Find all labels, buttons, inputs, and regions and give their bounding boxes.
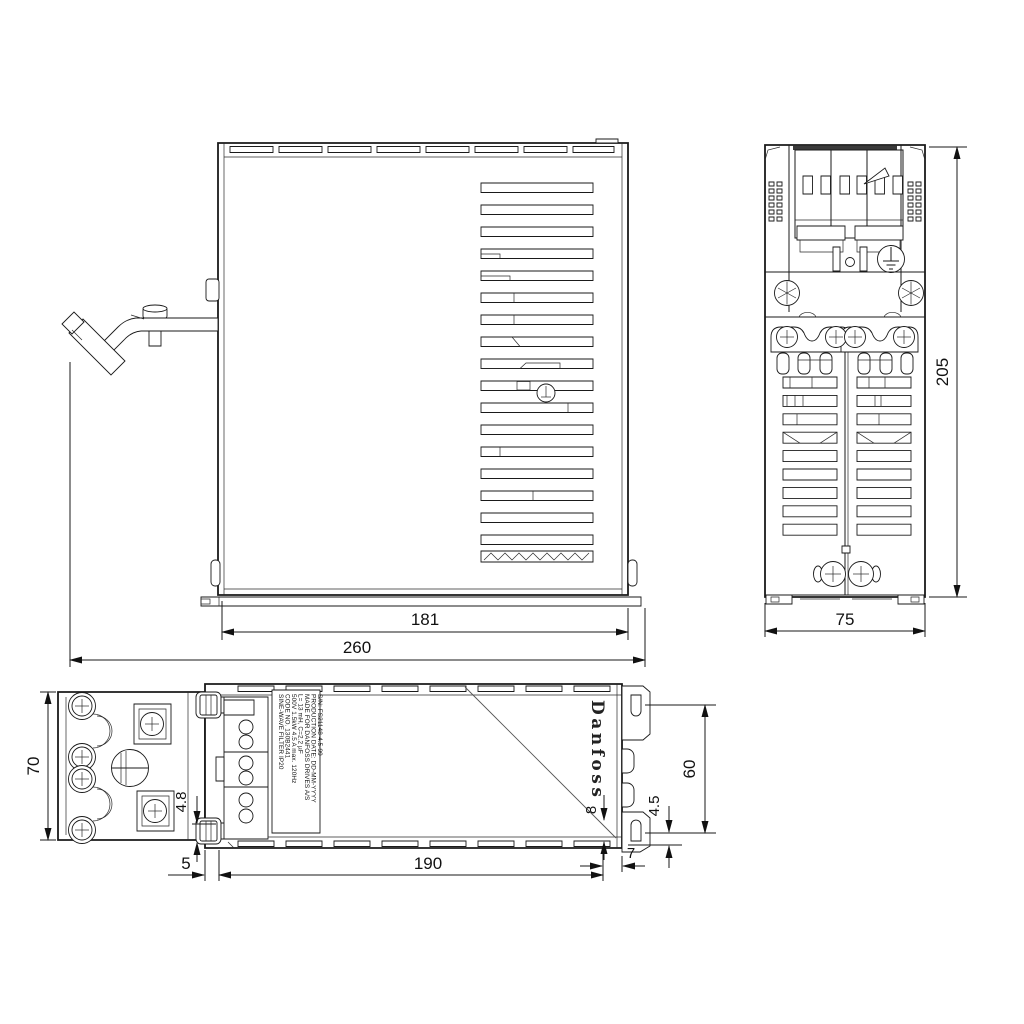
dim-4.8-text: 4.8 bbox=[173, 792, 190, 813]
label-line: PRODUCTION DATE: DD-MM-YYYY bbox=[310, 694, 317, 803]
dim-260-text: 260 bbox=[343, 638, 371, 657]
label-line: S/N: FS21148-4.5-99 bbox=[316, 694, 323, 756]
dim-60-text: 60 bbox=[680, 760, 699, 779]
label-line: SINE-WAVE FILTER IP20 bbox=[277, 694, 284, 770]
mounting-bracket bbox=[62, 279, 219, 375]
front-view: 205 75 bbox=[765, 145, 967, 637]
clamp-assembly bbox=[58, 692, 205, 844]
dim-7-text: 7 bbox=[627, 845, 635, 862]
dimension-5: 5 bbox=[168, 850, 219, 881]
pe-ground-icon bbox=[878, 246, 905, 273]
bottom-view: SINE-WAVE FILTER IP20 CODE NO. 130B2441 … bbox=[24, 684, 716, 881]
side-bumps bbox=[622, 749, 634, 807]
dim-190-text: 190 bbox=[414, 854, 442, 873]
engineering-drawing-page: 181 260 bbox=[0, 0, 1024, 1024]
mount-tab-top bbox=[622, 686, 650, 740]
dimension-190: 190 bbox=[219, 848, 603, 881]
dim-181-text: 181 bbox=[411, 610, 439, 629]
dim-5-text: 5 bbox=[181, 854, 190, 873]
label-line: MADE FOR DANFOSS DRIVES A/S bbox=[303, 694, 310, 800]
danfoss-logo: Danfoss bbox=[587, 700, 607, 800]
dim-4.5-text: 4.5 bbox=[646, 796, 663, 817]
terminal-block-plan bbox=[216, 697, 268, 839]
dimensional-drawing: 181 260 bbox=[0, 0, 1024, 1024]
dimension-70: 70 bbox=[24, 692, 56, 840]
dim-205-text: 205 bbox=[933, 358, 952, 386]
slotted-screw-icon bbox=[112, 750, 149, 787]
dimension-75: 75 bbox=[765, 603, 925, 637]
filter-body: SINE-WAVE FILTER IP20 CODE NO. 130B2441 … bbox=[196, 684, 650, 852]
dim-75-text: 75 bbox=[836, 610, 855, 629]
dimension-181: 181 bbox=[222, 601, 628, 640]
side-view: 181 260 bbox=[62, 139, 645, 667]
product-label: SINE-WAVE FILTER IP20 CODE NO. 130B2441 … bbox=[272, 690, 323, 833]
label-line: L= 13 mH, C=2.2 µF bbox=[297, 694, 304, 754]
dim-8-text: 8 bbox=[583, 806, 600, 814]
terminal-top-hatch bbox=[793, 146, 897, 151]
dimension-205: 205 bbox=[929, 147, 967, 597]
label-line: CODE NO. 130B2441 bbox=[284, 694, 291, 759]
dim-70-text: 70 bbox=[24, 757, 43, 776]
label-line: 500V 1.5kW 4.5 A max. 120Hz bbox=[290, 694, 297, 783]
